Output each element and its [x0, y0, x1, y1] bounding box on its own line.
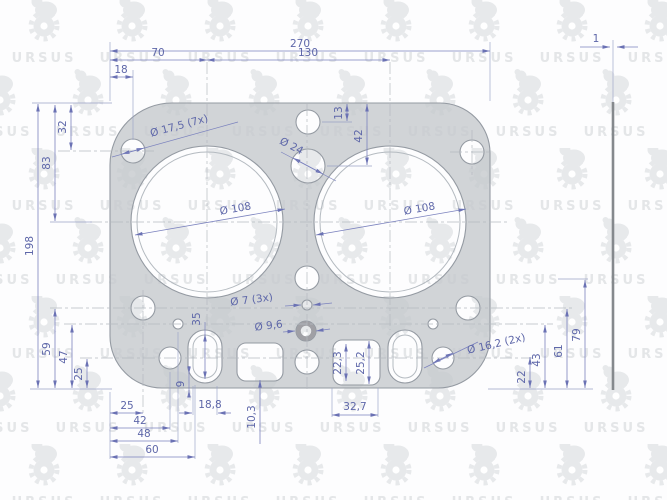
dim-right-61: 61 [553, 344, 565, 357]
dim-chain-42: 42 [133, 415, 146, 427]
dim-top-hole-offset: 13 [333, 106, 345, 119]
dim-slot-height: 35 [191, 312, 203, 325]
dim-bore-spacing: 130 [298, 47, 318, 59]
dim-top-hole: 32 [57, 120, 69, 133]
dim-height: 198 [24, 236, 36, 256]
dim-bore-center: 83 [41, 156, 53, 169]
dim-thickness: 1 [593, 33, 600, 45]
dim-passage-25-2: 25,2 [355, 351, 367, 374]
gasket-drawing-page: URSUS URSUS URSUS [0, 0, 667, 500]
dim-right-79: 79 [571, 328, 583, 341]
dim-left-bore-offset: 70 [151, 47, 164, 59]
dim-passage-width: 32,7 [343, 401, 366, 413]
dim-lower-25: 25 [73, 367, 85, 380]
dim-passage-22-3: 22,3 [332, 351, 344, 374]
dim-edge-gap: 9 [175, 381, 187, 388]
dim-chain-25: 25 [120, 400, 133, 412]
dim-chain-60: 60 [145, 444, 158, 456]
cylinder-head-gasket-technical-drawing: URSUS URSUS URSUS [0, 0, 667, 500]
dim-passage-offset: 10,3 [246, 405, 258, 428]
dim-lower-47: 47 [58, 350, 70, 363]
dim-lower-59: 59 [41, 342, 53, 355]
dim-corner-hole-offset: 18 [114, 64, 127, 76]
dim-water-hole-offset: 42 [353, 129, 365, 142]
dim-right-22: 22 [516, 370, 528, 383]
watermark-layer [0, 0, 667, 500]
dim-chain-48: 48 [137, 428, 150, 440]
dim-slot-width: 18,8 [198, 399, 221, 411]
dim-right-43: 43 [531, 353, 543, 366]
